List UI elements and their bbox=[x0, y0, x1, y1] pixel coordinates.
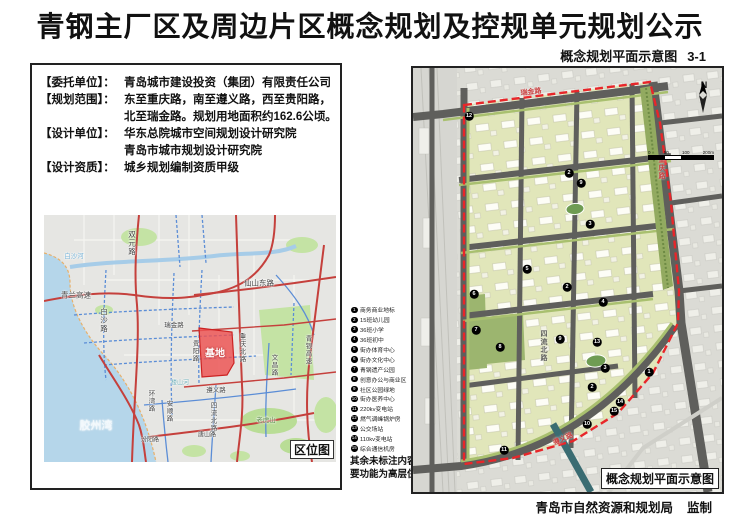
legend-item: 1商务商业地标 bbox=[351, 305, 415, 315]
publisher-role: 监制 bbox=[687, 501, 712, 515]
scale-tick-label: 100 bbox=[682, 150, 690, 155]
page-title: 青钢主厂区及周边片区概念规划及控规单元规划公示 bbox=[0, 5, 740, 45]
info-line: 【规划范围】：东至重庆路，南至遵义路，西至贵阳路， bbox=[40, 92, 337, 109]
publisher-name: 青岛市自然资源和规划局 bbox=[535, 501, 673, 515]
map-road-label: 双元路 bbox=[127, 230, 138, 256]
legend-item-number: 8 bbox=[351, 376, 358, 383]
legend-item-label: 15班幼儿园 bbox=[360, 315, 390, 324]
info-line: 【设计单位】：华东总院城市空间规划设计研究院 bbox=[40, 126, 337, 143]
legend-item: 9社区公园绿地 bbox=[351, 384, 415, 394]
plan-marker: 9 bbox=[556, 335, 565, 344]
plan-marker: 9 bbox=[577, 179, 586, 188]
sheet-subtitle: 概念规划平面示意图3-1 bbox=[560, 46, 706, 65]
plan-map: 1229352647913831214151011 瑞金路重庆路四流北路遵义路 … bbox=[411, 66, 724, 494]
legend-item-label: 街办医养中心 bbox=[360, 394, 395, 403]
legend-item: 6街办文化中心 bbox=[351, 354, 415, 364]
location-map-caption: 区位图 bbox=[290, 440, 334, 459]
info-panel: 【委托单位】：青岛城市建设投资（集团）有限责任公司【规划范围】：东至重庆路，南至… bbox=[30, 63, 342, 490]
legend-item-number: 13 bbox=[351, 425, 358, 432]
legend-item: 11220kv变电站 bbox=[351, 404, 415, 414]
project-info-block: 【委托单位】：青岛城市建设投资（集团）有限责任公司【规划范围】：东至重庆路，南至… bbox=[40, 75, 337, 177]
plan-marker: 15 bbox=[610, 407, 619, 416]
legend-item: 14110kv变电站 bbox=[351, 434, 415, 444]
plan-marker: 10 bbox=[583, 420, 592, 429]
map-road-label: 青兰高速 bbox=[61, 290, 91, 301]
map-road-label: 白沙路 bbox=[99, 307, 110, 333]
plan-marker: 2 bbox=[563, 283, 572, 292]
scale-segment bbox=[681, 156, 713, 159]
legend-item-label: 110kv变电站 bbox=[360, 434, 392, 443]
info-line-value: 城乡规划编制资质甲级 bbox=[124, 160, 239, 177]
info-line-value: 东至重庆路，南至遵义路，西至贵阳路， bbox=[124, 92, 331, 109]
legend-item: 10街办医养中心 bbox=[351, 394, 415, 404]
legend-item-label: 220kv变电站 bbox=[360, 404, 393, 413]
map-road-label: 青银高速 bbox=[302, 335, 312, 365]
plan-marker: 11 bbox=[500, 446, 509, 455]
legend-item: 215班幼儿园 bbox=[351, 315, 415, 325]
map-road-label: 楼山河 bbox=[171, 378, 189, 387]
sheet-number: 3-1 bbox=[687, 49, 706, 64]
info-line: 北至瑞金路。规划用地面积约162.6公顷。 bbox=[124, 109, 337, 126]
map-road-label: 贵阳路 bbox=[189, 340, 199, 363]
info-line-value: 华东总院城市空间规划设计研究院 bbox=[124, 126, 297, 143]
map-road-label: 老虎山 bbox=[256, 414, 276, 424]
map-road-label: 重庆北路 bbox=[236, 333, 246, 363]
legend-item: 15综合通信机房 bbox=[351, 443, 415, 453]
legend-item: 436班初中 bbox=[351, 335, 415, 345]
legend-item-number: 4 bbox=[351, 336, 358, 343]
legend-item-number: 9 bbox=[351, 386, 358, 393]
legend-item-number: 1 bbox=[351, 307, 358, 314]
plan-map-graphic bbox=[413, 68, 722, 492]
legend-item: 5街办体育中心 bbox=[351, 345, 415, 355]
subtitle-text: 概念规划平面示意图 bbox=[560, 49, 677, 64]
info-line-value: 北至瑞金路。规划用地面积约162.6公顷。 bbox=[124, 109, 337, 126]
legend-item-label: 青钢遗产公园 bbox=[360, 365, 395, 374]
legend-item-label: 36班小学 bbox=[360, 325, 384, 334]
map-road-label: 白沙河 bbox=[64, 250, 84, 260]
plan-marker: 4 bbox=[599, 298, 608, 307]
info-line-label: 【委托单位】： bbox=[40, 75, 124, 92]
map-road-label: 汾阳路 bbox=[141, 435, 159, 444]
legend-items: 1商务商业地标215班幼儿园336班小学436班初中5街办体育中心6街办文化中心… bbox=[351, 305, 415, 453]
scale-tick-label: 200m bbox=[703, 150, 714, 155]
map-road-label: 文昌路 bbox=[268, 354, 278, 377]
scale-bar-segments bbox=[648, 155, 714, 160]
legend-item-label: 公交场站 bbox=[360, 424, 383, 433]
legend-item-label: 社区公园绿地 bbox=[360, 385, 395, 394]
map-road-label: 胶州湾 bbox=[80, 417, 113, 433]
legend-item: 7青钢遗产公园 bbox=[351, 364, 415, 374]
info-line: 青岛市城市规划设计研究院 bbox=[124, 143, 337, 160]
plan-marker: 13 bbox=[593, 338, 602, 347]
plan-marker: 7 bbox=[472, 326, 481, 335]
map-road-label: 瑞金路 bbox=[164, 319, 184, 329]
legend-item: 336班小学 bbox=[351, 325, 415, 335]
scale-bar: 050100200m bbox=[648, 150, 714, 160]
legend-item-number: 5 bbox=[351, 346, 358, 353]
public-notice-sheet: 青钢主厂区及周边片区概念规划及控规单元规划公示 概念规划平面示意图3-1 【委托… bbox=[0, 0, 740, 518]
info-line-value: 青岛城市建设投资（集团）有限责任公司 bbox=[124, 75, 331, 92]
legend-item-number: 6 bbox=[351, 356, 358, 363]
legend-item-number: 10 bbox=[351, 396, 358, 403]
scale-tick-label: 0 bbox=[648, 150, 651, 155]
legend-item-label: 街办体育中心 bbox=[360, 345, 395, 354]
legend-item-number: 12 bbox=[351, 415, 358, 422]
scale-tick-label: 50 bbox=[664, 150, 669, 155]
map-road-label: 仙山东路 bbox=[244, 278, 274, 289]
footer: 青岛市自然资源和规划局监制 bbox=[535, 497, 712, 516]
legend-item-label: 创意办公与商业区 bbox=[360, 375, 406, 384]
plan-marker: 8 bbox=[496, 343, 505, 352]
location-map: 双元路白沙河青兰高速白沙路仙山东路瑞金路贵阳路重庆北路文昌路遵义路楼山河四流北路… bbox=[44, 215, 336, 462]
map-road-label: 唐山路 bbox=[198, 430, 216, 439]
legend-item-number: 2 bbox=[351, 317, 358, 324]
north-arrow: N bbox=[696, 80, 712, 90]
plan-marker: 2 bbox=[588, 383, 597, 392]
map-road-label: 遵义路 bbox=[206, 384, 226, 394]
plan-marker: 14 bbox=[616, 398, 625, 407]
map-road-label: 安顺路 bbox=[163, 400, 173, 423]
legend: 1商务商业地标215班幼儿园336班小学436班初中5街办体育中心6街办文化中心… bbox=[351, 305, 415, 453]
legend-item-label: 36班初中 bbox=[360, 335, 384, 344]
legend-item-number: 3 bbox=[351, 326, 358, 333]
info-line-label: 【设计单位】： bbox=[40, 126, 124, 143]
site-label: 基地 bbox=[205, 345, 225, 360]
legend-item-number: 14 bbox=[351, 435, 358, 442]
scale-segment bbox=[649, 156, 665, 159]
plan-marker: 6 bbox=[470, 290, 479, 299]
map-road-label: 环湾路 bbox=[145, 390, 155, 413]
north-arrow-glyph bbox=[696, 80, 710, 114]
map-road-label: 四流北路 bbox=[207, 402, 217, 432]
legend-item-number: 7 bbox=[351, 366, 358, 373]
legend-item-number: 11 bbox=[351, 406, 358, 413]
legend-item-label: 街办文化中心 bbox=[360, 355, 395, 364]
plan-marker: 5 bbox=[523, 265, 532, 274]
plan-marker: 3 bbox=[586, 220, 595, 229]
legend-item-label: 综合通信机房 bbox=[360, 444, 395, 453]
plan-marker: 2 bbox=[565, 169, 574, 178]
plan-map-caption: 概念规划平面示意图 bbox=[601, 468, 719, 489]
scale-segment bbox=[665, 156, 681, 159]
legend-item-number: 15 bbox=[351, 445, 358, 452]
legend-item-label: 燃气调峰锅炉房 bbox=[360, 414, 401, 423]
info-line-value: 青岛市城市规划设计研究院 bbox=[124, 143, 262, 160]
legend-item-label: 商务商业地标 bbox=[360, 305, 395, 314]
plan-marker: 12 bbox=[465, 112, 474, 121]
plan-marker: 1 bbox=[645, 368, 654, 377]
info-line-label: 【设计资质】： bbox=[40, 160, 124, 177]
info-line: 【委托单位】：青岛城市建设投资（集团）有限责任公司 bbox=[40, 75, 337, 92]
plan-marker: 3 bbox=[601, 364, 610, 373]
info-line-label: 【规划范围】： bbox=[40, 92, 124, 109]
info-line: 【设计资质】：城乡规划编制资质甲级 bbox=[40, 160, 337, 177]
legend-item: 13公交场站 bbox=[351, 424, 415, 434]
plan-road-label: 四流北路 bbox=[538, 330, 548, 362]
legend-item: 12燃气调峰锅炉房 bbox=[351, 414, 415, 424]
legend-item: 8创意办公与商业区 bbox=[351, 374, 415, 384]
